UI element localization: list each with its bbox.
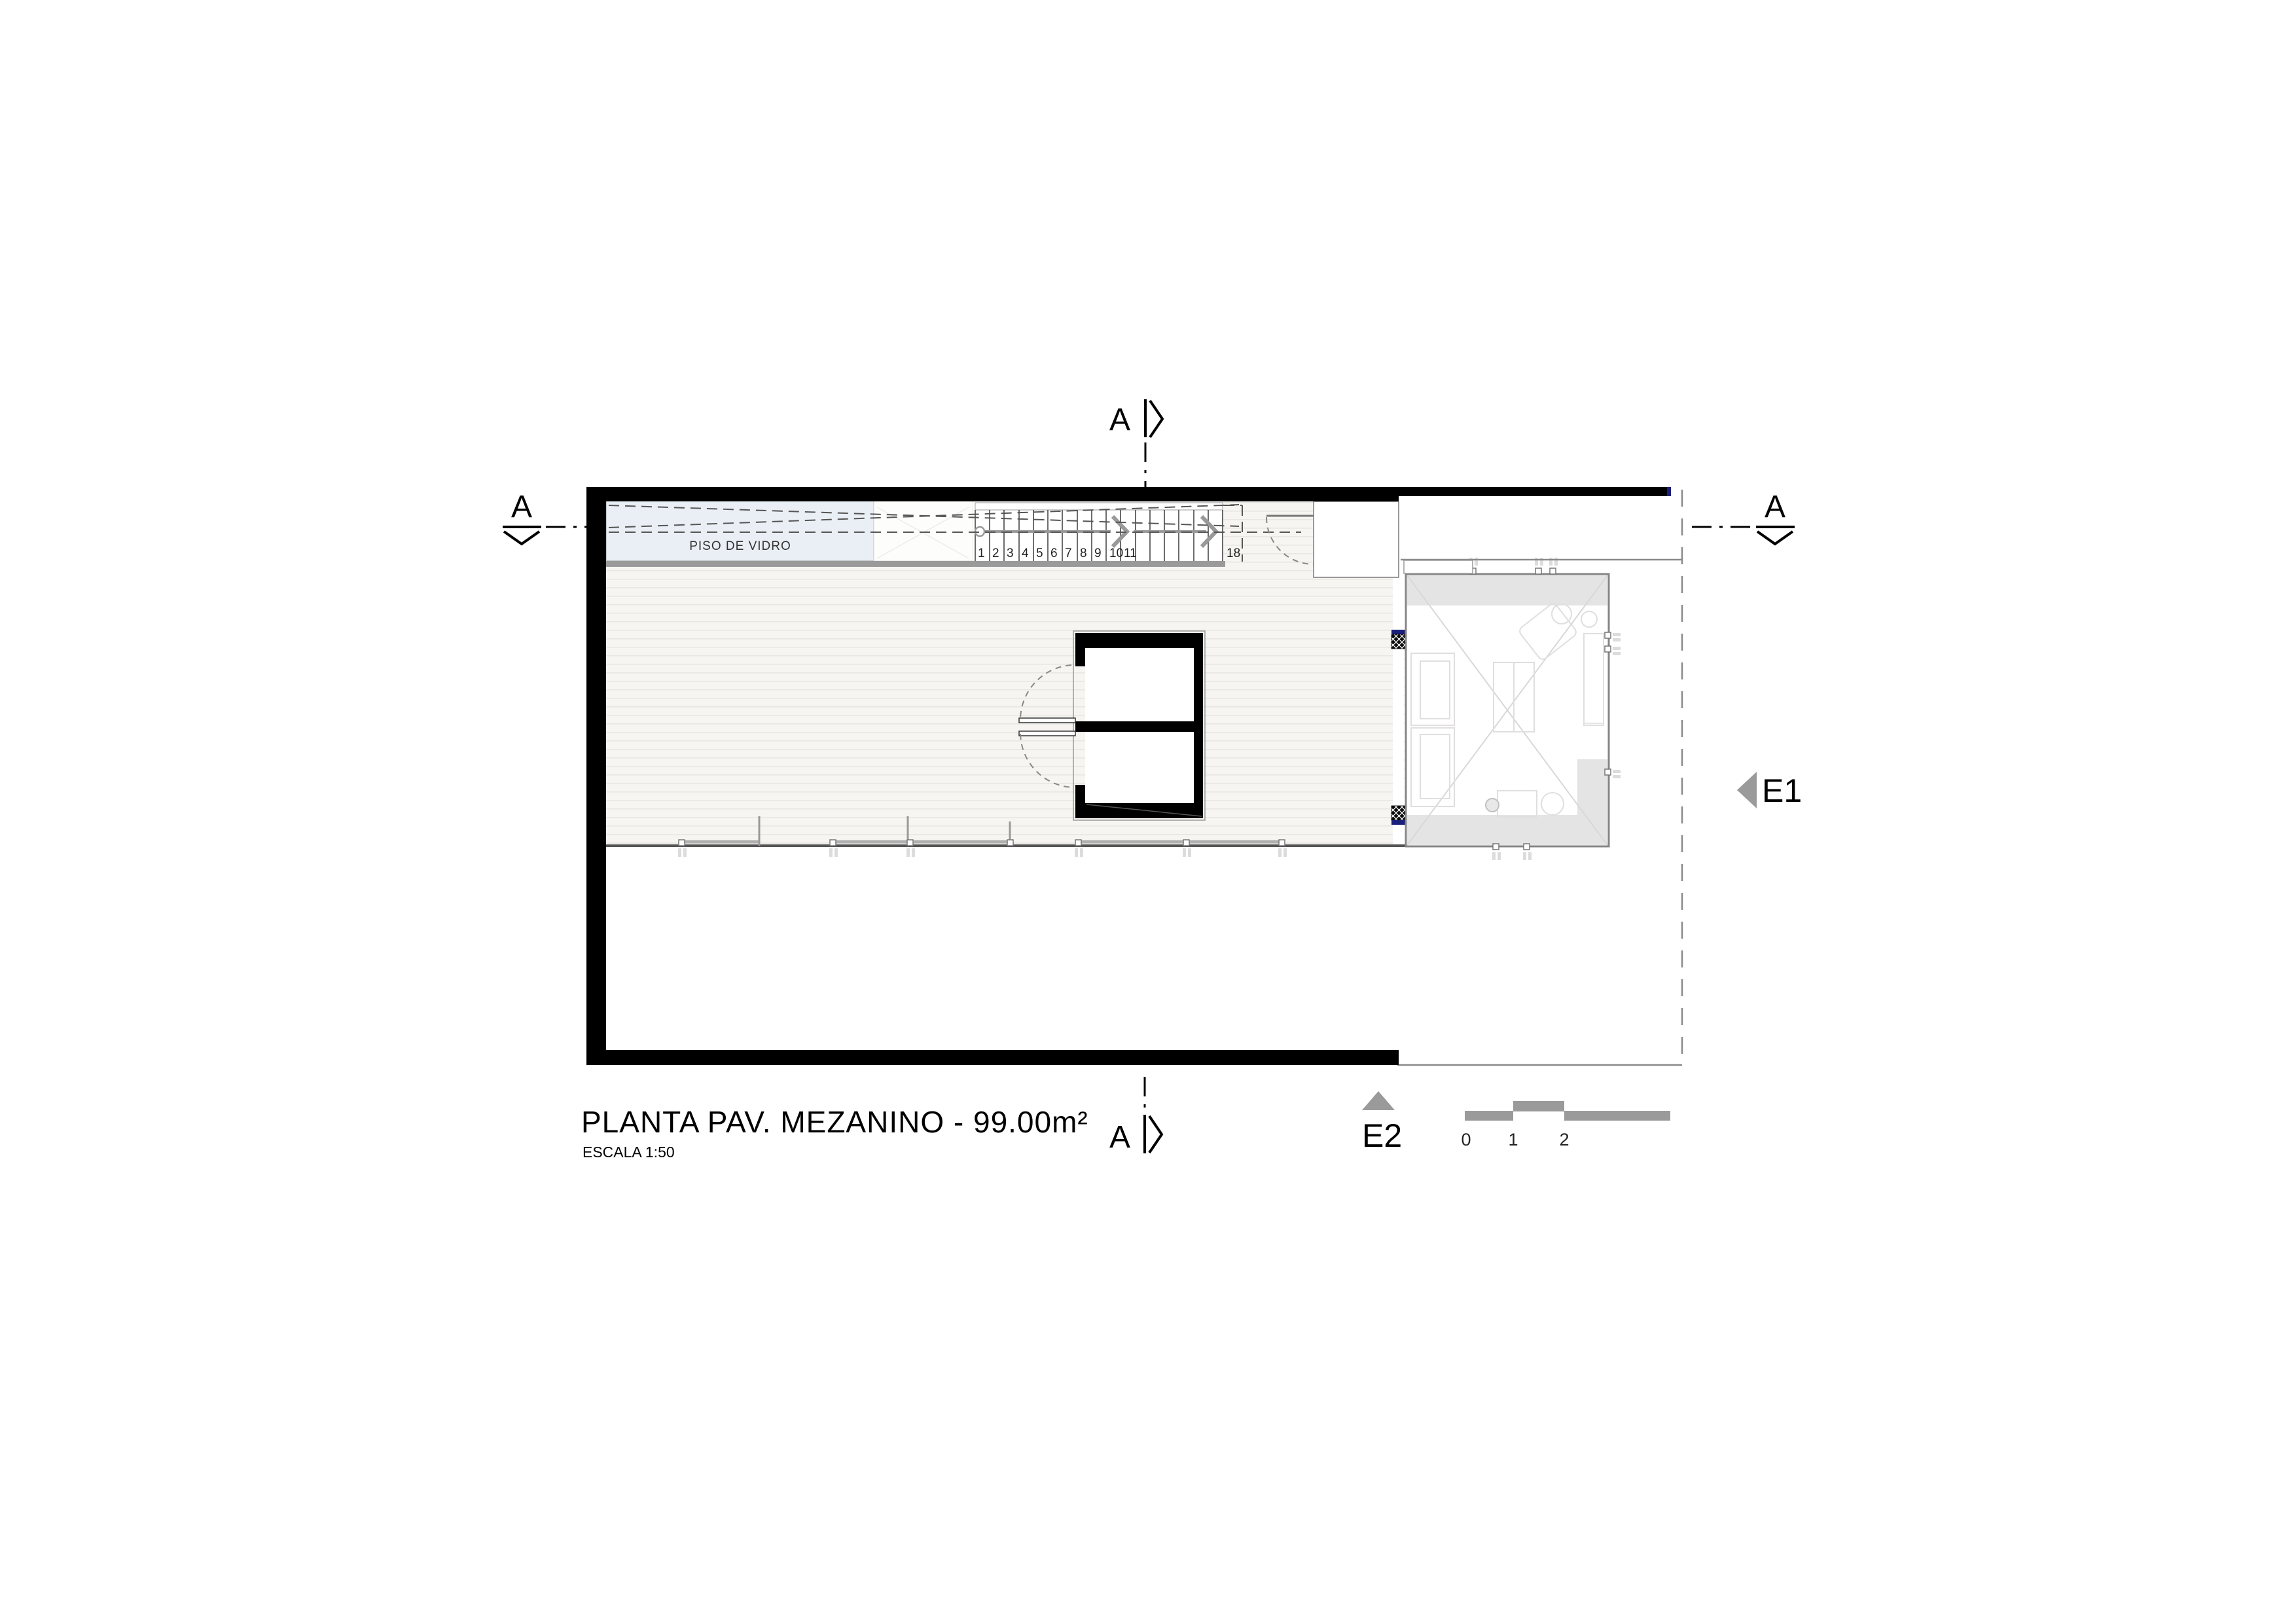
svg-text:7: 7 (1065, 547, 1072, 560)
section-label-right: A (1765, 490, 1785, 524)
floor-level-strip (606, 561, 1225, 567)
section-label-bottom: A (1109, 1120, 1130, 1155)
scale-tick-0: 0 (1461, 1130, 1471, 1149)
svg-text:11: 11 (1124, 547, 1137, 560)
section-marker-top: A (1109, 399, 1162, 487)
svg-text:3: 3 (1007, 547, 1014, 560)
section-marker-left: A (503, 490, 586, 544)
shaft-door-leaf-upper (1019, 718, 1075, 723)
section-chevron-left (504, 532, 539, 544)
e1-label: E1 (1762, 772, 1802, 809)
column-top (1391, 634, 1406, 649)
drawing-sheet: PISO DE VIDRO 1 2 3 4 5 6 7 8 9 10 1 (0, 0, 2296, 1624)
svg-text:5: 5 (1036, 547, 1043, 560)
e2-label: E2 (1362, 1117, 1402, 1154)
section-chevron-bottom (1149, 1116, 1162, 1153)
shaft-lower-cab (1085, 732, 1194, 803)
e2-arrow-icon (1362, 1091, 1395, 1110)
section-label-left: A (511, 490, 532, 524)
stair-last-tread-number: 18 (1227, 547, 1240, 560)
stair: 1 2 3 4 5 6 7 8 9 10 11 18 (973, 501, 1240, 561)
section-chevron-top (1150, 401, 1162, 437)
drawing-title: PLANTA PAV. MEZANINO - 99.00m² (581, 1105, 1088, 1139)
svg-text:4: 4 (1022, 547, 1029, 560)
svg-text:6: 6 (1050, 547, 1058, 560)
scale-tick-2: 2 (1559, 1130, 1569, 1149)
section-marker-bottom: A (1109, 1077, 1162, 1155)
svg-text:10: 10 (1109, 547, 1123, 560)
drawing-scale: ESCALA 1:50 (583, 1144, 675, 1161)
svg-text:1: 1 (978, 547, 985, 560)
elevation-marker-e2: E2 (1362, 1091, 1402, 1154)
section-chevron-right (1757, 532, 1793, 544)
void-opening (1406, 558, 1621, 860)
title-block: PLANTA PAV. MEZANINO - 99.00m² ESCALA 1:… (581, 1105, 1088, 1161)
section-label-top: A (1109, 403, 1130, 437)
floor-plan-drawing: PISO DE VIDRO 1 2 3 4 5 6 7 8 9 10 1 (0, 0, 2296, 1624)
shaft-door-leaf-lower (1019, 731, 1075, 736)
scale-tick-1: 1 (1508, 1130, 1518, 1149)
svg-text:2: 2 (992, 547, 999, 560)
e1-arrow-icon (1737, 772, 1757, 808)
svg-text:8: 8 (1080, 547, 1087, 560)
svg-text:9: 9 (1094, 547, 1102, 560)
section-marker-right: A (1692, 490, 1795, 544)
shaft-upper-cab (1085, 648, 1194, 721)
glass-floor: PISO DE VIDRO (606, 499, 973, 561)
scale-bar: 0 1 2 (1461, 1101, 1670, 1149)
column-bottom (1391, 806, 1406, 820)
elevation-marker-e1: E1 (1737, 772, 1802, 809)
glass-floor-label: PISO DE VIDRO (689, 539, 791, 553)
beam-outline (1404, 560, 1473, 573)
